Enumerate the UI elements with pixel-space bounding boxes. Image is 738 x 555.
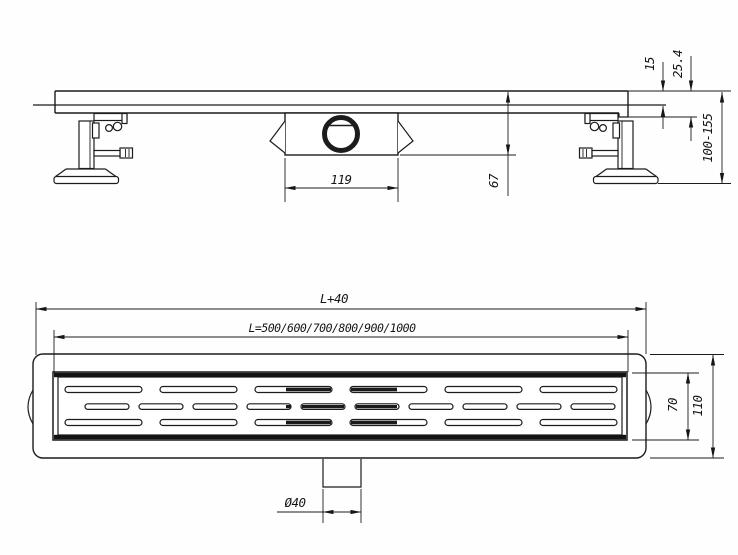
clamp-screw-shaft: [592, 151, 618, 157]
grate-slot: [409, 404, 453, 410]
end-tab-right: [646, 390, 651, 424]
dim-overall-width-110: 110: [650, 355, 724, 459]
adjustable-foot-left: [54, 114, 133, 184]
slot-shadow: [286, 421, 331, 425]
side-elevation-view: 119 67 15 25.4 100-155: [33, 50, 731, 202]
dim-label-67: 67: [486, 173, 501, 188]
slot-shadow: [356, 405, 397, 408]
dim-label-25-4: 25.4: [670, 50, 685, 78]
technical-drawing: 119 67 15 25.4 100-155: [0, 0, 738, 555]
trap-wing-left: [270, 121, 285, 153]
grate-slot: [540, 420, 617, 426]
dim-label-overall-length: L+40: [320, 291, 348, 306]
grate-slot: [65, 420, 142, 426]
outlet-socket: [323, 459, 361, 487]
dim-label-110: 110: [690, 395, 705, 416]
wing-nut-lobe: [600, 125, 607, 132]
grate-slot: [160, 420, 237, 426]
adjustable-foot-right: [580, 114, 659, 184]
grate-slot: [445, 387, 522, 393]
dim-label-15: 15: [642, 57, 657, 71]
drawing-sheet: 119 67 15 25.4 100-155: [0, 0, 738, 555]
dim-label-outlet-diameter: Ø40: [284, 495, 305, 510]
plan-view: L+40 L=500/600/700/800/900/1000 Ø40 70: [28, 291, 724, 523]
foot-bracket-lip: [585, 114, 590, 124]
slot-shadow: [286, 405, 291, 408]
grate-slot: [85, 404, 129, 410]
grate-frame-band-bottom: [54, 435, 626, 439]
grate-slot: [571, 404, 615, 410]
grate-slot: [247, 404, 291, 410]
dim-outlet-diameter: Ø40: [277, 489, 361, 523]
end-tab-left: [28, 390, 33, 424]
slot-shadow: [351, 388, 397, 392]
dim-trap-depth-67: 67: [486, 92, 508, 196]
foot-clamp-plate: [613, 123, 620, 138]
dim-label-channel-length: L=500/600/700/800/900/1000: [248, 321, 416, 335]
grate-slot: [160, 387, 237, 393]
foot-post: [618, 121, 633, 169]
slot-shadow: [351, 421, 397, 425]
grate-slot: [65, 387, 142, 393]
grate-slot: [139, 404, 183, 410]
dim-grate-thickness-15: 15: [642, 57, 663, 129]
grate-frame-band-top: [54, 373, 626, 377]
foot-dome: [596, 169, 657, 177]
grate-slot: [517, 404, 561, 410]
trap-wing-right: [398, 121, 413, 153]
grate-slot: [193, 404, 237, 410]
foot-base: [594, 177, 659, 184]
wing-nut: [590, 122, 598, 130]
dim-trap-width-119: 119: [285, 158, 398, 202]
dim-label-119: 119: [330, 172, 351, 187]
dim-label-70: 70: [665, 398, 680, 412]
grate-slot: [445, 420, 522, 426]
grate-slot: [463, 404, 507, 410]
dim-height-range-100-155: 100-155: [700, 92, 722, 184]
channel-right-step: [619, 113, 628, 117]
dim-label-100-155: 100-155: [700, 113, 715, 162]
grate-slot: [540, 387, 617, 393]
dim-edge-height-25-4: 25.4: [670, 50, 691, 141]
slot-shadow: [286, 388, 331, 392]
clamp-screw-head: [580, 148, 593, 158]
slot-shadow: [302, 405, 344, 408]
